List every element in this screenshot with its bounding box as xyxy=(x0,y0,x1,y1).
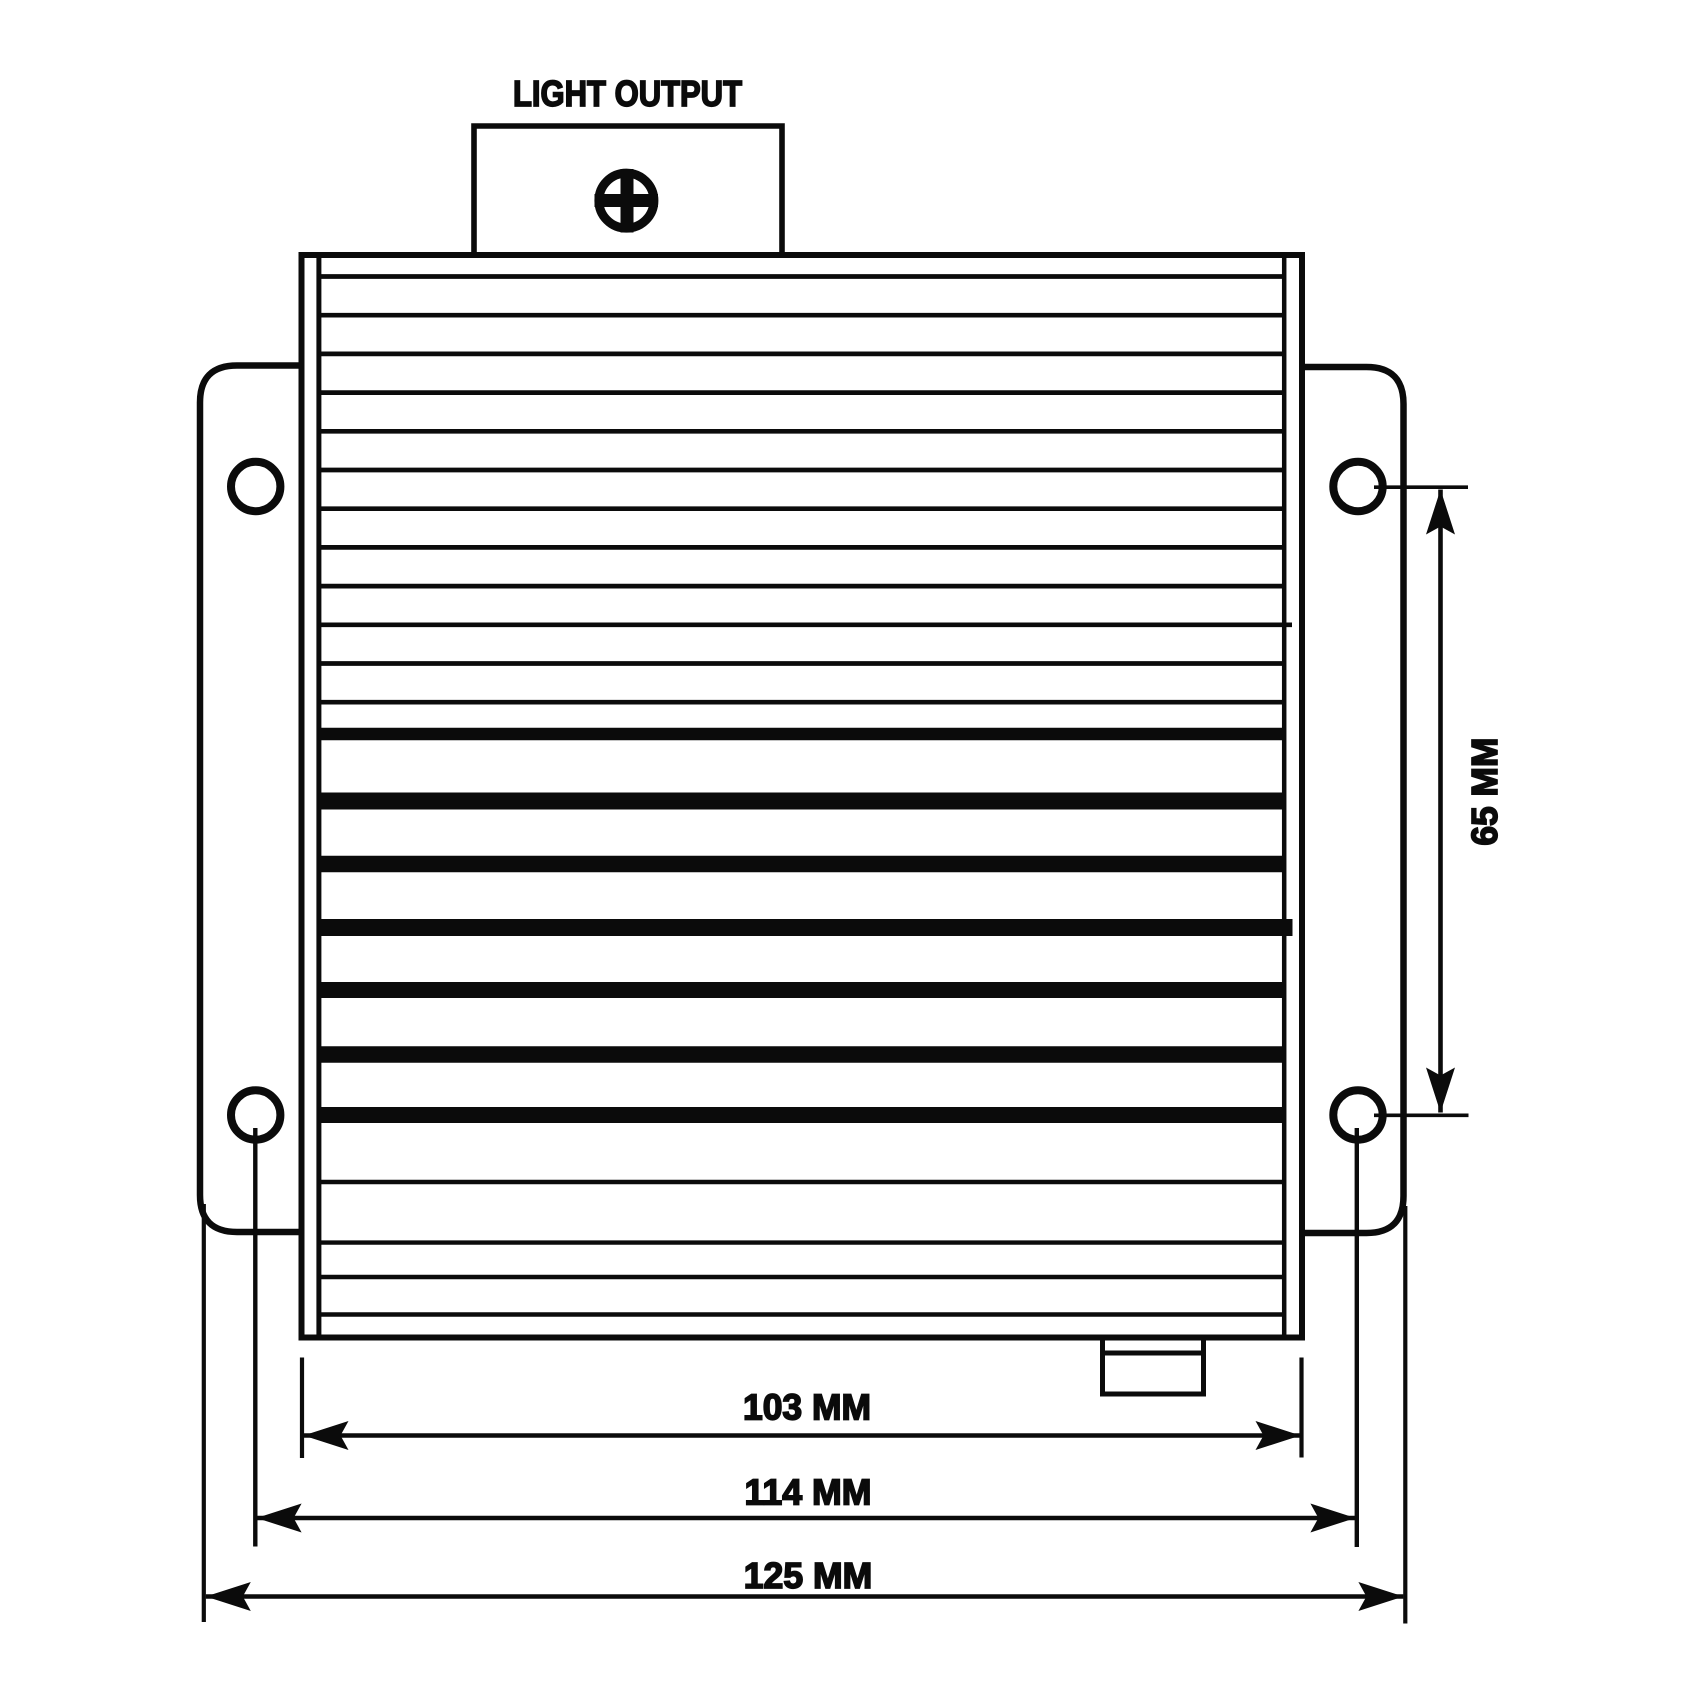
svg-text:125 MM: 125 MM xyxy=(744,1555,873,1596)
svg-text:114 MM: 114 MM xyxy=(745,1472,872,1513)
svg-text:LIGHT OUTPUT: LIGHT OUTPUT xyxy=(513,73,742,114)
svg-text:65 MM: 65 MM xyxy=(1464,738,1505,846)
svg-text:103 MM: 103 MM xyxy=(743,1387,871,1428)
